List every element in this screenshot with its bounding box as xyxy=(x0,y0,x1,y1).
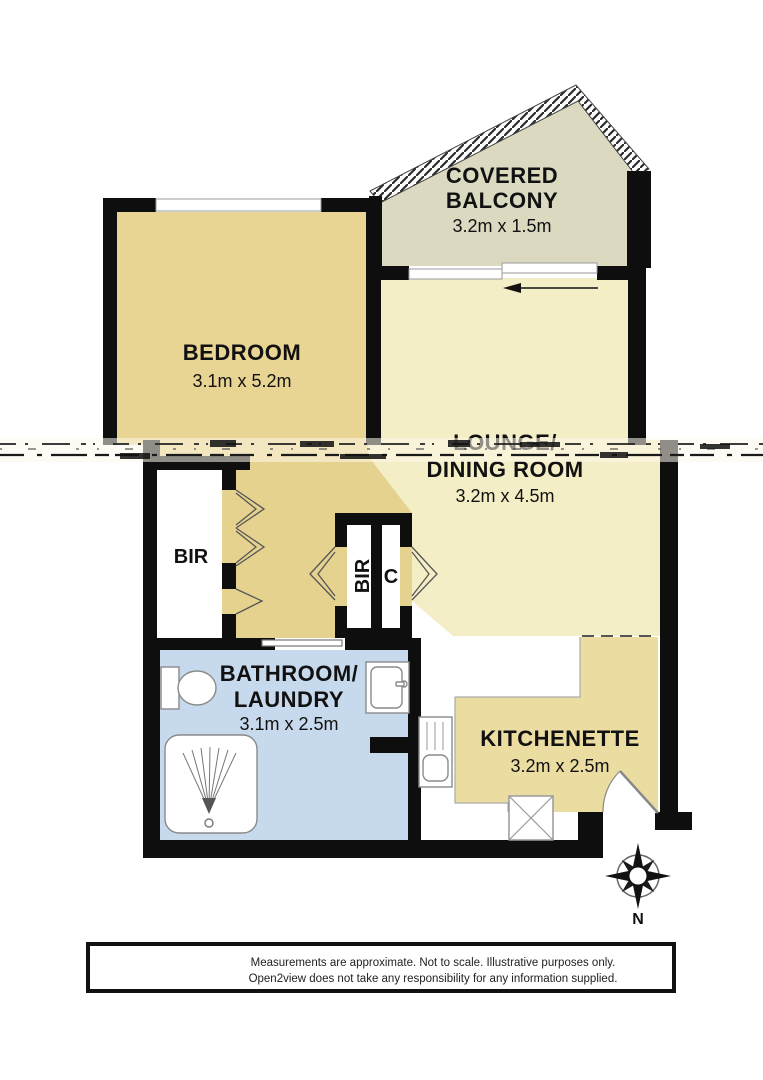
floorplan-drawing: COVERED BALCONY 3.2m x 1.5m BEDROOM 3.1m… xyxy=(0,0,763,1080)
bedroom-window xyxy=(156,199,321,211)
kitchenette-bottom-wall-right xyxy=(655,812,692,830)
balcony-slider-panel-1 xyxy=(409,269,502,279)
bedroom-label: BEDROOM xyxy=(183,340,301,365)
shower-icon xyxy=(165,735,257,833)
balcony-dims: 3.2m x 1.5m xyxy=(452,216,551,236)
toilet-icon xyxy=(161,667,216,709)
bedroom-dims: 3.1m x 5.2m xyxy=(192,371,291,391)
kitchenette-label: KITCHENETTE xyxy=(480,726,640,751)
crossed-box-icon xyxy=(509,796,553,840)
bathroom-dims: 3.1m x 2.5m xyxy=(239,714,338,734)
disclaimer-line1: Measurements are approximate. Not to sca… xyxy=(251,957,616,969)
kitchenette-dims: 3.2m x 2.5m xyxy=(510,756,609,776)
bedroom-left-wall xyxy=(103,198,117,445)
closet-c-label: C xyxy=(384,566,398,588)
compass-north-label: N xyxy=(632,911,644,928)
right-wall-lower xyxy=(660,440,678,830)
kitchen-sink-icon xyxy=(419,717,452,787)
bathroom-label-line1: BATHROOM/ xyxy=(220,661,359,686)
page-join-tear xyxy=(0,438,763,462)
balcony-lounge-wall-left xyxy=(381,266,409,280)
closet-left-stub-top xyxy=(335,513,347,547)
bir-middle-label: BIR xyxy=(352,558,374,593)
balcony-label-line1: COVERED xyxy=(446,163,558,188)
lounge-dims: 3.2m x 4.5m xyxy=(455,486,554,506)
sink-icon xyxy=(366,662,409,713)
bathroom-wall-stub xyxy=(370,737,408,753)
balcony-right-wall xyxy=(627,171,651,268)
bir-right-wall-stub-top xyxy=(222,470,236,490)
bedroom-top-wall-left xyxy=(103,198,156,212)
floorplan-page: COVERED BALCONY 3.2m x 1.5m BEDROOM 3.1m… xyxy=(0,0,763,1080)
lounge-floor-upper xyxy=(381,278,628,445)
bathroom-top-wall-left xyxy=(143,638,275,650)
bathroom-sliding-door-panel xyxy=(262,640,342,646)
disclaimer-box: Measurements are approximate. Not to sca… xyxy=(88,944,674,991)
disclaimer-line2: Open2view does not take any responsibili… xyxy=(249,973,618,985)
closet-right-stub-bottom xyxy=(400,606,412,640)
bottom-wall-main xyxy=(143,840,603,858)
bir-left-label: BIR xyxy=(174,546,209,568)
bottom-wall-step xyxy=(578,812,603,858)
lounge-right-wall-upper xyxy=(628,268,646,445)
balcony-slider-panel-2 xyxy=(502,263,597,273)
bedroom-floor xyxy=(117,212,366,445)
compass-icon: N xyxy=(605,843,671,928)
balcony-label-line2: BALCONY xyxy=(446,188,558,213)
closet-left-stub-bottom xyxy=(335,606,347,640)
balcony-lounge-wall-right xyxy=(597,266,628,280)
balcony-left-wall xyxy=(369,196,382,268)
bir-right-wall-stub-mid xyxy=(222,563,236,589)
bathroom-label-line2: LAUNDRY xyxy=(234,687,344,712)
closet-right-stub-top xyxy=(400,513,412,547)
